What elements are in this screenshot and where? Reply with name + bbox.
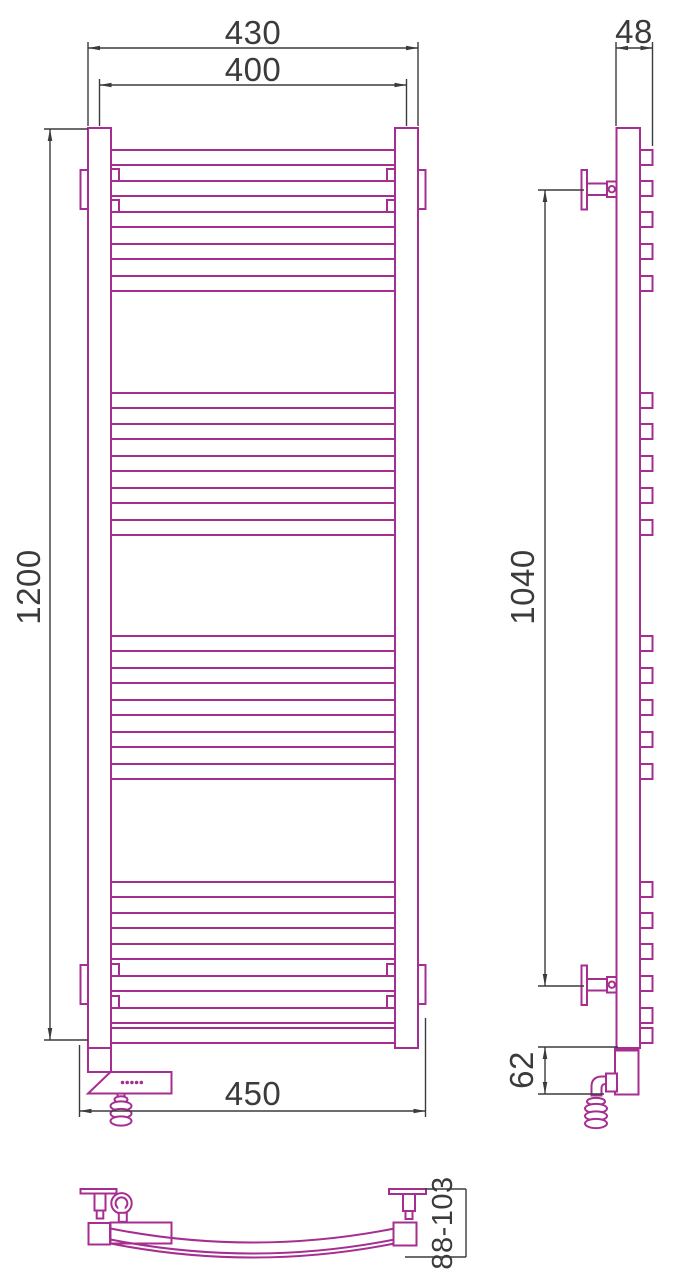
power-cord-coil-side bbox=[585, 1098, 607, 1128]
dimension-bracket-distance: 1040 bbox=[504, 190, 584, 986]
rung-end bbox=[640, 1008, 653, 1023]
rung bbox=[111, 456, 395, 471]
dim-label-88-103: 88-103 bbox=[427, 1176, 459, 1269]
rung-end bbox=[640, 668, 653, 683]
power-cord-coil-front bbox=[111, 1094, 132, 1126]
rung-end bbox=[640, 944, 653, 959]
rung-end bbox=[640, 882, 653, 897]
rung bbox=[111, 976, 395, 991]
rung bbox=[111, 882, 395, 897]
rung bbox=[111, 488, 395, 503]
rung-end bbox=[640, 276, 653, 291]
rung-end bbox=[640, 732, 653, 747]
rung bbox=[111, 212, 395, 227]
technical-drawing-page: 430 400 1200 450 48 1040 62 bbox=[0, 0, 673, 1280]
dim-label-62: 62 bbox=[503, 1051, 540, 1089]
rung-end bbox=[640, 976, 653, 991]
rung bbox=[111, 424, 395, 439]
rung bbox=[111, 1028, 395, 1043]
bottom-view-bracket-right bbox=[389, 1189, 426, 1219]
rung-end bbox=[640, 488, 653, 503]
left-post-section bbox=[89, 1223, 111, 1245]
rung-end bbox=[640, 393, 653, 408]
rung bbox=[111, 913, 395, 928]
heating-element-box-side bbox=[592, 1048, 639, 1096]
side-post bbox=[617, 128, 641, 1048]
heating-element-box bbox=[88, 1048, 172, 1094]
rung-end bbox=[640, 764, 653, 779]
dim-label-430: 430 bbox=[225, 14, 282, 51]
dimension-depth: 48 bbox=[615, 13, 653, 146]
front-right-post bbox=[395, 128, 418, 1048]
rung-end bbox=[640, 244, 653, 259]
rung bbox=[111, 1008, 395, 1023]
rung bbox=[111, 732, 395, 747]
rung bbox=[111, 636, 395, 651]
side-wall-bracket-top bbox=[582, 170, 617, 210]
front-view bbox=[81, 128, 426, 1126]
dim-label-1040: 1040 bbox=[504, 549, 541, 624]
right-post-section bbox=[394, 1223, 417, 1246]
towel-rail-drawing: 430 400 1200 450 48 1040 62 bbox=[0, 0, 673, 1280]
rung bbox=[111, 244, 395, 259]
rung bbox=[111, 944, 395, 959]
front-left-post bbox=[88, 128, 111, 1048]
side-wall-bracket-bottom bbox=[582, 966, 617, 1006]
dim-label-450: 450 bbox=[225, 1075, 282, 1112]
rung bbox=[111, 668, 395, 683]
rung-end bbox=[640, 150, 653, 165]
rung-end bbox=[640, 424, 653, 439]
rung-end bbox=[640, 456, 653, 471]
dim-label-400: 400 bbox=[225, 51, 282, 88]
dim-label-48: 48 bbox=[615, 13, 653, 50]
side-rung-ends bbox=[640, 150, 653, 1043]
dimension-rail-centers: 400 bbox=[100, 51, 407, 126]
rung bbox=[111, 520, 395, 535]
rung bbox=[111, 181, 395, 196]
rung bbox=[111, 764, 395, 779]
side-view bbox=[582, 128, 653, 1128]
rung bbox=[111, 276, 395, 291]
rung-end bbox=[640, 636, 653, 651]
rung-end bbox=[640, 700, 653, 715]
front-rungs bbox=[111, 150, 395, 1043]
rung bbox=[111, 700, 395, 715]
rung bbox=[111, 150, 395, 165]
rung bbox=[111, 393, 395, 408]
dimension-overall-height: 1200 bbox=[10, 129, 88, 1040]
dim-label-1200: 1200 bbox=[10, 549, 47, 624]
cable-gland-top bbox=[111, 1193, 131, 1222]
rung-end bbox=[640, 520, 653, 535]
rung-end bbox=[640, 181, 653, 196]
rung-end bbox=[640, 212, 653, 227]
rung-end bbox=[640, 1028, 653, 1043]
bottom-view bbox=[81, 1189, 427, 1258]
front-wall-brackets bbox=[81, 170, 426, 1004]
rung-end bbox=[640, 913, 653, 928]
